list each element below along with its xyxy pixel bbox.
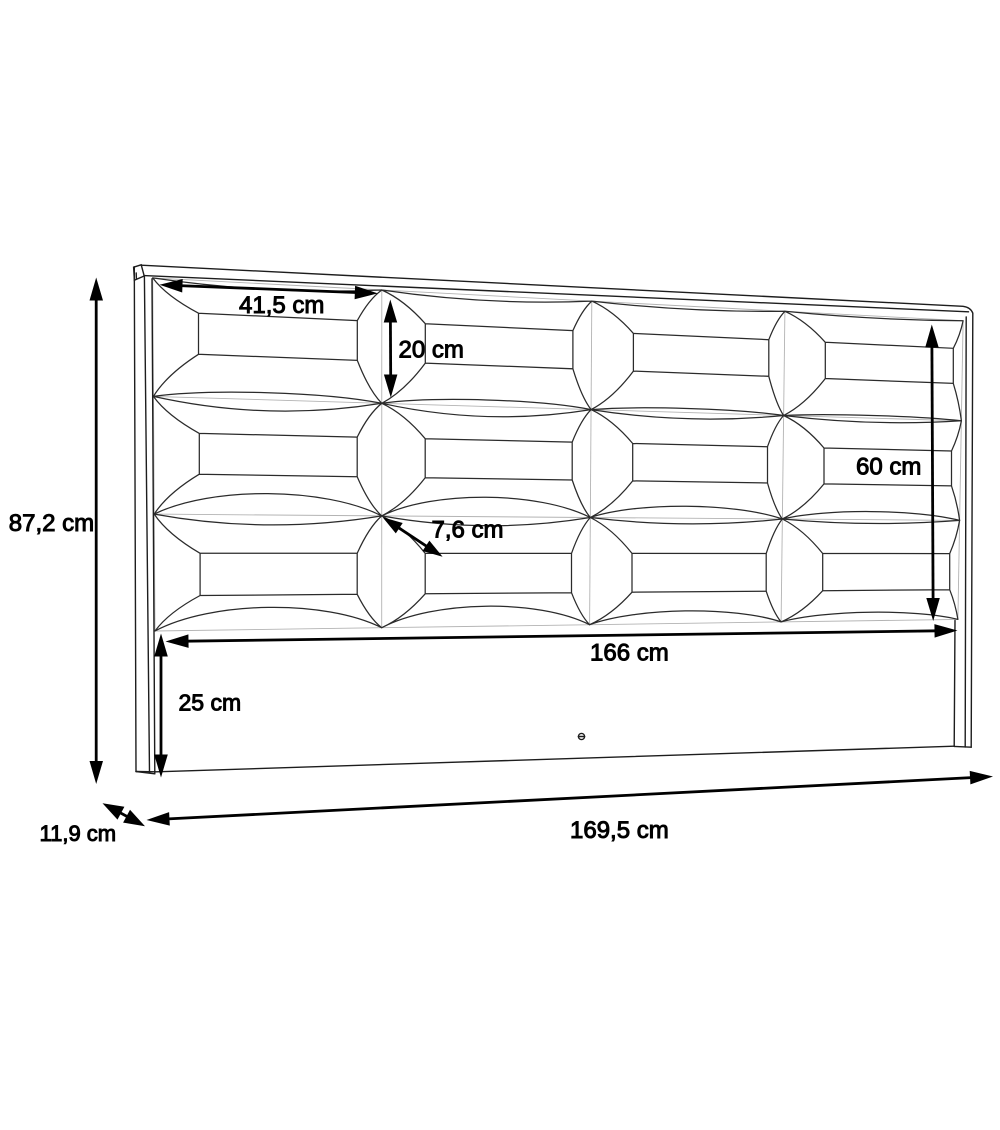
svg-text:166 cm: 166 cm [590, 640, 669, 667]
svg-text:60 cm: 60 cm [856, 454, 921, 481]
svg-text:41,5 cm: 41,5 cm [239, 292, 324, 319]
svg-text:87,2 cm: 87,2 cm [9, 510, 94, 537]
svg-text:20 cm: 20 cm [399, 337, 464, 364]
svg-text:7,6 cm: 7,6 cm [432, 517, 504, 544]
svg-text:169,5 cm: 169,5 cm [570, 817, 669, 844]
svg-text:25 cm: 25 cm [179, 690, 242, 716]
svg-text:11,9 cm: 11,9 cm [40, 821, 117, 846]
